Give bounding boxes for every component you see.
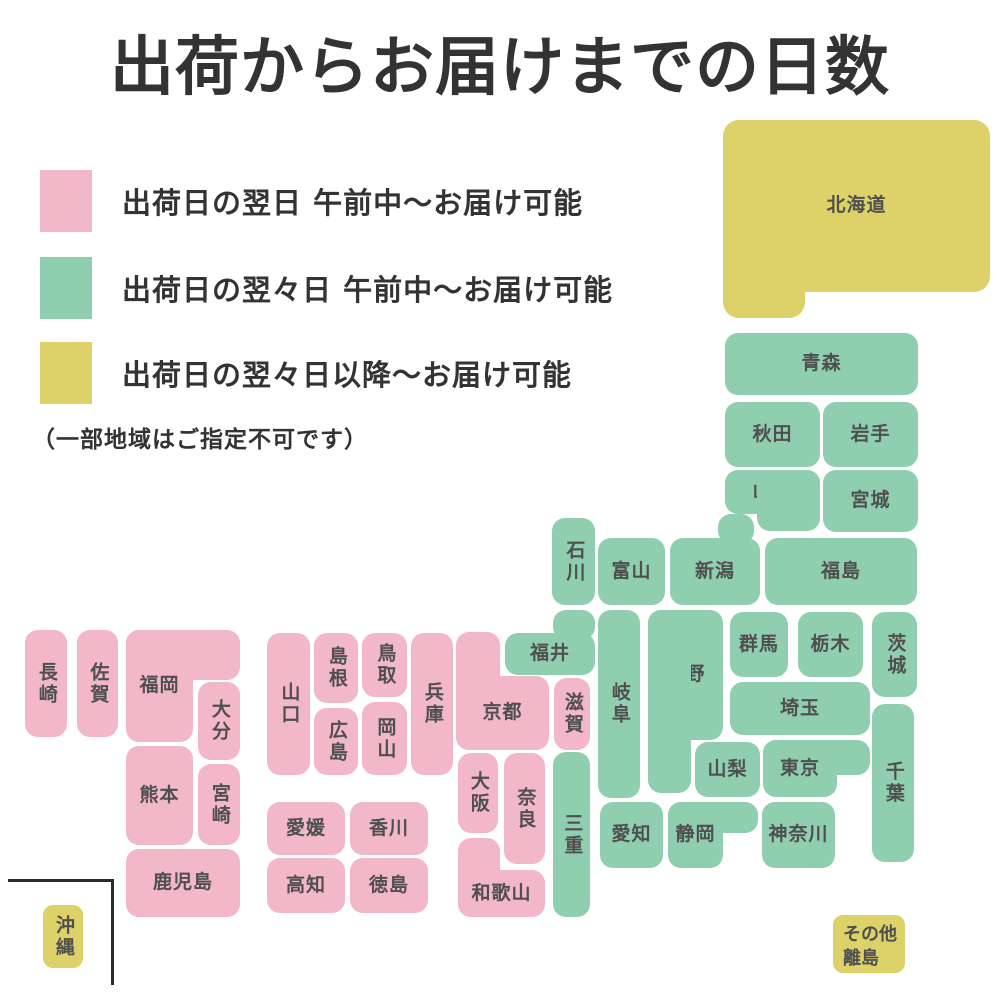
- prefecture-label-shimane: 島根: [323, 646, 349, 690]
- prefecture-label-ehime: 愛媛: [286, 816, 326, 842]
- prefecture-niigata: 新潟: [670, 538, 760, 605]
- prefecture-label-yamanashi: 山梨: [707, 757, 747, 783]
- prefecture-label-hiroshima: 広島: [323, 720, 349, 764]
- prefecture-kumamoto: 熊本: [126, 746, 193, 845]
- prefecture-okinawa: 沖縄: [43, 905, 83, 968]
- prefecture-miyagi: 宮城: [823, 470, 918, 532]
- prefecture-shizuoka: 静岡: [668, 802, 723, 868]
- prefecture-label-oita: 大分: [206, 699, 232, 743]
- prefecture-nara: 奈良: [504, 753, 545, 864]
- prefecture-label-hyogo: 兵庫: [419, 682, 445, 726]
- prefecture-other-islands: その他 離島: [833, 915, 905, 973]
- prefecture-oita: 大分: [198, 682, 240, 760]
- prefecture-nagano: [648, 610, 691, 793]
- prefecture-hiroshima: 広島: [314, 708, 358, 775]
- prefecture-aomori: 青森: [725, 333, 918, 395]
- prefecture-hyogo: 兵庫: [411, 633, 453, 775]
- prefecture-label-hokkaido: 北海道: [826, 193, 886, 219]
- prefecture-label-wakayama: 和歌山: [471, 881, 531, 907]
- prefecture-label-miyazaki: 宮崎: [206, 783, 232, 827]
- prefecture-fukushima: 福島: [765, 538, 917, 605]
- prefecture-iwate: 岩手: [823, 402, 918, 467]
- prefecture-shimane: 島根: [314, 633, 358, 703]
- prefecture-label-tottori: 鳥取: [372, 643, 398, 687]
- prefecture-tochigi: 栃木: [798, 612, 863, 677]
- prefecture-label-niigata: 新潟: [695, 559, 735, 585]
- prefecture-gunma: 群馬: [730, 612, 788, 677]
- prefecture-chiba: 千葉: [872, 704, 914, 862]
- prefecture-label-ibaraki: 茨城: [882, 633, 908, 677]
- prefecture-label-okayama: 岡山: [372, 717, 398, 761]
- prefecture-miyazaki: 宮崎: [198, 764, 240, 845]
- prefecture-label-tochigi: 栃木: [810, 632, 850, 658]
- prefecture-yamaguchi: 山口: [267, 633, 310, 775]
- prefecture-label-kanagawa: 神奈川: [768, 822, 828, 848]
- prefecture-fukui: [553, 610, 595, 640]
- prefecture-gifu: 岐阜: [598, 610, 640, 798]
- prefecture-label-saitama: 埼玉: [780, 696, 820, 722]
- prefecture-osaka: 大阪: [458, 753, 498, 833]
- prefecture-kyoto: 京都: [456, 676, 549, 750]
- prefecture-kochi: 高知: [267, 858, 345, 913]
- prefecture-label-yamaguchi: 山口: [276, 682, 302, 726]
- prefecture-label-mie: 三重: [559, 813, 585, 857]
- prefecture-label-other-islands: その他 離島: [843, 923, 897, 972]
- prefecture-label-kagoshima: 鹿児島: [153, 870, 213, 896]
- prefecture-label-ishikawa: 石川: [561, 540, 587, 584]
- prefecture-ishikawa: 石川: [552, 518, 595, 605]
- prefecture-saga: 佐賀: [77, 630, 118, 737]
- prefecture-label-nagasaki: 長崎: [33, 662, 59, 706]
- prefecture-label-osaka: 大阪: [465, 771, 491, 815]
- prefecture-label-okinawa: 沖縄: [50, 915, 76, 959]
- prefecture-label-iwate: 岩手: [850, 422, 890, 448]
- prefecture-label-toyama: 富山: [611, 559, 651, 585]
- prefecture-nagasaki: 長崎: [25, 630, 67, 737]
- prefecture-wakayama: 和歌山: [458, 870, 545, 917]
- prefecture-label-aichi: 愛知: [611, 822, 651, 848]
- prefecture-label-aomori: 青森: [801, 351, 841, 377]
- prefecture-label-fukui: 福井: [530, 641, 570, 667]
- prefecture-toyama: 富山: [598, 538, 665, 605]
- prefecture-tokyo: 東京: [763, 740, 837, 797]
- prefecture-kagoshima: 鹿児島: [126, 849, 240, 917]
- prefecture-label-fukuoka: 福岡: [139, 673, 179, 699]
- prefecture-tokushima: 徳島: [350, 858, 428, 913]
- prefecture-label-gifu: 岐阜: [606, 682, 632, 726]
- prefecture-label-kagawa: 香川: [369, 816, 409, 842]
- prefecture-label-kochi: 高知: [286, 873, 326, 899]
- prefecture-shiga: 滋賀: [554, 678, 590, 750]
- prefecture-akita: 秋田: [725, 402, 820, 467]
- prefecture-ibaraki: 茨城: [872, 612, 917, 697]
- prefecture-ehime: 愛媛: [267, 802, 345, 855]
- prefecture-label-kumamoto: 熊本: [139, 783, 179, 809]
- japan-tile-map: 北海道青森秋田岩手山形宮城新潟福島富山石川群馬栃木茨城埼玉山梨東京千葉神奈川長野…: [0, 0, 1000, 1000]
- prefecture-label-shiga: 滋賀: [559, 692, 585, 736]
- prefecture-hokkaido: [723, 235, 805, 318]
- prefecture-label-akita: 秋田: [752, 422, 792, 448]
- prefecture-label-gunma: 群馬: [739, 632, 779, 658]
- prefecture-label-miyagi: 宮城: [850, 488, 890, 514]
- prefecture-label-saga: 佐賀: [85, 662, 111, 706]
- prefecture-yamanashi: 山梨: [695, 742, 760, 797]
- prefecture-saitama: 埼玉: [730, 682, 870, 735]
- prefecture-label-tokushima: 徳島: [369, 873, 409, 899]
- prefecture-kagawa: 香川: [350, 802, 428, 855]
- shipping-days-infographic: 出荷からお届けまでの日数 出荷日の翌日 午前中〜お届け可能 出荷日の翌々日 午前…: [0, 0, 1000, 1000]
- prefecture-label-chiba: 千葉: [880, 761, 906, 805]
- prefecture-fukuoka: 福岡: [126, 630, 193, 742]
- prefecture-aichi: 愛知: [600, 802, 663, 868]
- prefecture-label-kyoto: 京都: [482, 700, 522, 726]
- prefecture-label-fukushima: 福島: [821, 559, 861, 585]
- prefecture-label-tokyo: 東京: [780, 756, 820, 782]
- prefecture-label-nara: 奈良: [512, 787, 538, 831]
- prefecture-tottori: 鳥取: [362, 633, 407, 697]
- prefecture-okayama: 岡山: [362, 702, 407, 775]
- prefecture-kanagawa: 神奈川: [762, 802, 835, 868]
- prefecture-mie: 三重: [553, 752, 590, 917]
- prefecture-niigata: [718, 514, 754, 544]
- prefecture-yamagata: [757, 470, 820, 531]
- prefecture-label-shizuoka: 静岡: [675, 822, 715, 848]
